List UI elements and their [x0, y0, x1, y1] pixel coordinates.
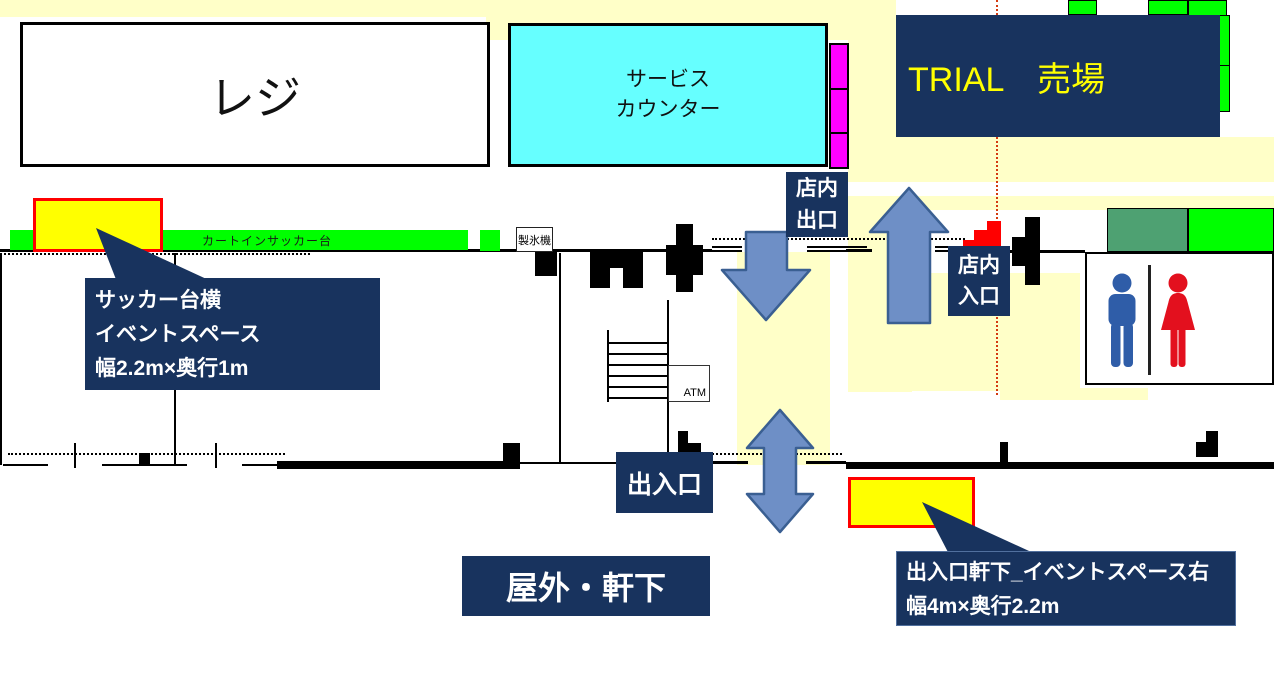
magenta-lockers [829, 43, 849, 169]
outdoor-eaves-label: 屋外・軒下 [462, 556, 710, 616]
walkway-area [848, 0, 896, 182]
callout-doorway-line: 幅4m×奥行2.2m [906, 590, 1226, 624]
door-dotted-line [712, 453, 842, 455]
staircase [605, 298, 671, 458]
callout-sacker-line: サッカー台横 [95, 284, 370, 318]
walkway-area [1000, 388, 1148, 400]
black-steps [1012, 237, 1026, 266]
walkway-area [737, 252, 830, 465]
event-space-doorway-box [848, 477, 975, 528]
green-shelf [1188, 208, 1274, 252]
callout-sacker: サッカー台横 イベントスペース 幅2.2m×奥行1m [85, 278, 380, 390]
door-line [3, 464, 48, 466]
stair-rung [608, 342, 668, 344]
doorway-text: 出入口 [627, 465, 702, 501]
ice-machine-box: 製氷機 [516, 227, 553, 252]
doorway-label: 出入口 [616, 452, 713, 513]
service-counter-area: サービス カウンター [508, 23, 828, 167]
outdoor-eaves-text: 屋外・軒下 [506, 563, 666, 609]
event-space-sacker-box [33, 198, 163, 252]
callout-doorway-line: 出入口軒下_イベントスペース右 [906, 556, 1226, 590]
wall-pillar [1000, 442, 1008, 464]
stair-rung [608, 386, 668, 388]
wall-pillar [535, 251, 557, 276]
callout-sacker-line: イベントスペース [95, 318, 370, 352]
store-entrance-text: 入口 [958, 281, 1000, 313]
door-line [807, 250, 867, 252]
store-exit-text: 店内 [796, 173, 838, 205]
sacker-dotted-line [0, 253, 310, 255]
stair-rung [608, 353, 668, 355]
wall-segment [559, 253, 561, 463]
walkway-area [896, 137, 1274, 182]
locker-cell [829, 90, 849, 134]
wall-segment [0, 253, 2, 465]
black-steps [1025, 217, 1040, 285]
atm-box: ATM [668, 365, 710, 402]
service-counter-label: カウンター [616, 95, 721, 125]
store-exit-label: 店内 出口 [786, 172, 848, 237]
door-tick [215, 443, 217, 468]
trial-area: TRIAL 売場 [896, 15, 1220, 137]
doorway-dotted-line [712, 238, 965, 240]
store-entrance-text: 店内 [958, 250, 1000, 282]
atm-label: ATM [684, 387, 706, 399]
wall-pillar [590, 268, 610, 288]
stair-rung [608, 397, 668, 399]
wall-pillar [590, 251, 643, 268]
female-icon [1158, 273, 1198, 369]
door-line [242, 464, 278, 466]
walkway-area [0, 0, 848, 17]
wall-segment [846, 462, 1274, 469]
service-counter-label: サービス [626, 65, 710, 95]
green-fixture [480, 230, 500, 251]
wall-pillar [1196, 442, 1218, 457]
register-area: レジ [20, 22, 490, 167]
green-shelf [1107, 208, 1188, 252]
door-line [712, 246, 742, 248]
restroom-area [1085, 252, 1274, 385]
green-shelf [1068, 0, 1097, 15]
restroom-divider [1148, 265, 1151, 375]
green-shelf [1148, 0, 1188, 15]
ice-machine-label: 製氷機 [518, 232, 551, 248]
wall-pillar [139, 453, 150, 465]
stair-rail [607, 330, 609, 402]
male-icon [1103, 273, 1141, 369]
door-line [712, 250, 742, 252]
stair-rung [608, 375, 668, 377]
callout-sacker-line: 幅2.2m×奥行1m [95, 352, 370, 386]
trial-label: TRIAL 売場 [908, 52, 1105, 101]
stair-rung [608, 364, 668, 366]
store-exit-text: 出口 [796, 205, 838, 237]
door-line [712, 461, 748, 464]
floorplan-canvas: カートインサッカー台 製氷機 ATM レジ サービス カウンター TRIAL 売… [0, 0, 1274, 673]
green-shelf [1188, 0, 1227, 16]
wall-pillar [623, 268, 643, 288]
wall-segment [520, 462, 616, 464]
locker-cell [829, 43, 849, 90]
wall-pillar [503, 443, 520, 462]
wall-pillar [666, 245, 703, 275]
cart-sacker-label: カートインサッカー台 [202, 232, 332, 249]
store-entrance-label: 店内 入口 [948, 246, 1010, 316]
register-label: レジ [209, 62, 301, 128]
door-line [807, 246, 867, 248]
callout-doorway: 出入口軒下_イベントスペース右 幅4m×奥行2.2m [896, 551, 1236, 626]
locker-cell [829, 134, 849, 169]
wall-segment [277, 461, 520, 469]
door-tick [74, 443, 76, 468]
door-line [806, 461, 846, 464]
